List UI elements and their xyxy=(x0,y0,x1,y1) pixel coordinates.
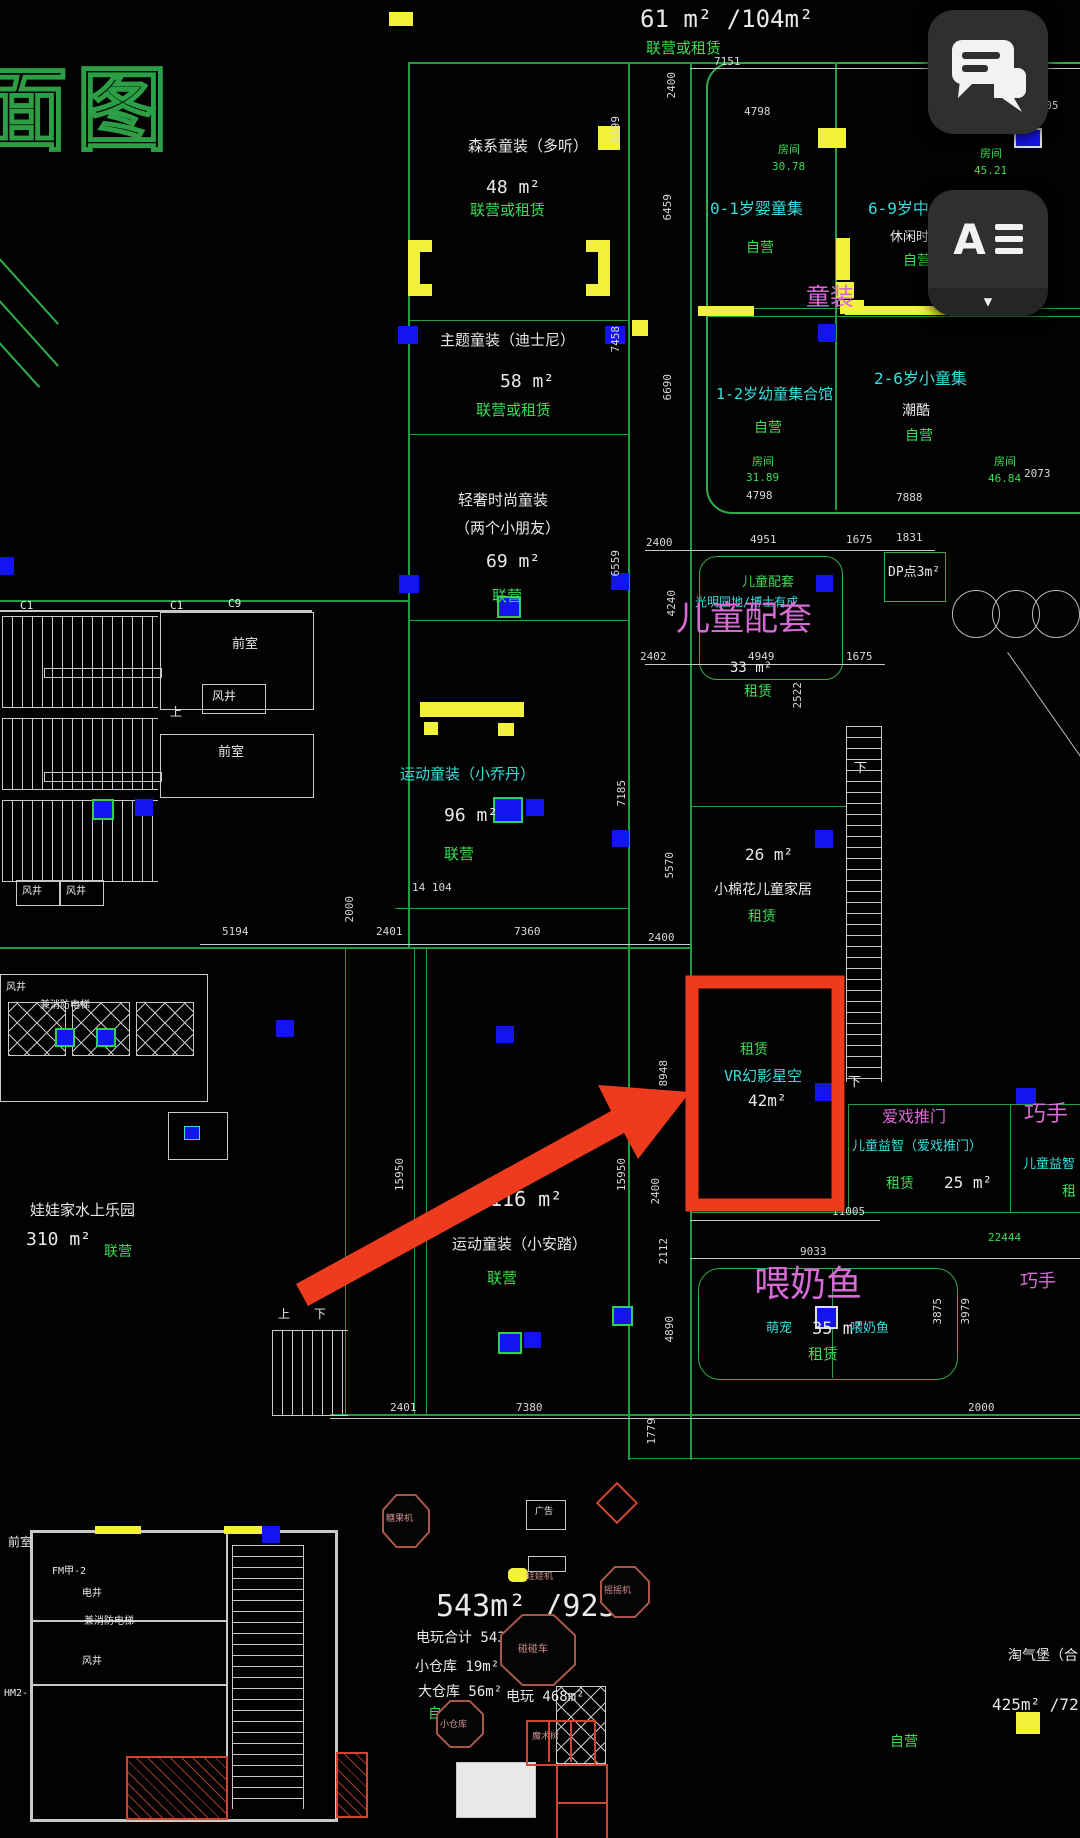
shaft-label: 风井 xyxy=(212,690,236,704)
wall-line xyxy=(706,316,1080,317)
wall-line xyxy=(408,320,628,321)
text-style-icon: A xyxy=(928,202,1048,276)
escalator xyxy=(272,1330,348,1416)
shop-mode: 联营或租赁 xyxy=(470,202,545,219)
shop-area: 26 m² xyxy=(745,846,793,864)
drawing-title-partial: 面图 xyxy=(0,58,176,164)
arcade-line: 小仓库 19m² xyxy=(415,1659,499,1675)
room-tag: 房间 xyxy=(994,456,1016,469)
dim-label: 11005 xyxy=(832,1206,865,1219)
elevator-shaft xyxy=(136,1002,194,1056)
shop-name: 儿童益智（ xyxy=(1023,1158,1080,1173)
dim-label: 2400 xyxy=(666,72,679,99)
chat-bubbles-icon xyxy=(928,10,1048,134)
grid-label: C1 xyxy=(20,600,33,613)
highlight-block xyxy=(698,306,754,316)
dim-label: 3875 xyxy=(932,1298,945,1325)
room-name: 0-1岁婴童集 xyxy=(710,200,803,218)
shop-mode: 自营 xyxy=(890,1734,918,1750)
door-code-label: HM2- xyxy=(4,1688,28,1700)
shop-mode: 联营或租赁 xyxy=(476,402,551,419)
marker-square xyxy=(135,799,153,816)
room-mode: 自营 xyxy=(905,428,933,444)
marker-square xyxy=(262,1526,280,1543)
shop-title: 巧手 xyxy=(1024,1102,1068,1127)
shop-name: 淘气堡（合 xyxy=(1008,1648,1078,1664)
fixture-marker xyxy=(184,1126,200,1140)
highlight-block xyxy=(389,12,413,26)
service-area xyxy=(336,1752,368,1818)
wall-line xyxy=(414,948,415,1415)
vr-area: 42m² xyxy=(748,1092,787,1110)
dim-label: 2000 xyxy=(968,1402,995,1415)
doll-box xyxy=(528,1556,566,1572)
furniture-label: 碰碰车 xyxy=(518,1644,548,1656)
highlight-block xyxy=(1016,1712,1040,1734)
door-code-label: FM甲-2 xyxy=(52,1566,86,1578)
dim-label: 6459 xyxy=(662,194,675,221)
hatch-line xyxy=(0,300,59,367)
shop-title: 爱戏推门 xyxy=(882,1108,946,1126)
furniture-label: 糖果机 xyxy=(386,1514,413,1524)
dim-label: 7360 xyxy=(514,926,541,939)
stair-landing xyxy=(44,772,162,782)
shop-area: 310 m² xyxy=(26,1230,91,1251)
chat-button[interactable] xyxy=(928,10,1048,134)
furniture-label: 娃娃机 xyxy=(526,1572,553,1582)
marker-square xyxy=(818,324,836,342)
shop-name: 儿童益智（爱戏推门） xyxy=(852,1140,982,1155)
marker-square xyxy=(526,799,544,816)
shop-title: 巧手 xyxy=(1020,1272,1056,1293)
highlight-block xyxy=(836,238,850,280)
dim-label: 2401 xyxy=(390,1402,417,1415)
shaft-label: 风井 xyxy=(22,886,42,898)
dim-label: 2400 xyxy=(646,537,673,550)
dim-label: 7888 xyxy=(896,492,923,505)
wall-line xyxy=(426,948,427,1415)
wall-line xyxy=(848,1104,849,1212)
shop-name2: （两个小朋友） xyxy=(455,520,560,537)
wall-line xyxy=(408,434,628,435)
direction-label: 上 xyxy=(170,706,182,720)
room-tag-value: 45.21 xyxy=(974,165,1007,178)
highlight-block xyxy=(586,240,610,252)
highlight-block xyxy=(498,723,514,736)
shaft-label: 风井 xyxy=(82,1656,102,1668)
shop-sublabel: 喂奶鱼 xyxy=(850,1322,889,1337)
wall-line xyxy=(628,1458,1080,1459)
shop-area: 69 m² xyxy=(486,552,540,573)
wall-line xyxy=(408,62,410,948)
shop-mode: 租 xyxy=(1062,1184,1076,1200)
dim-label: 6690 xyxy=(662,374,675,401)
furniture-label: 小仓库 xyxy=(440,1720,467,1730)
marker-square xyxy=(816,575,833,592)
service-box xyxy=(556,1764,608,1804)
service-area xyxy=(126,1756,228,1820)
direction-label: 下 xyxy=(314,1308,326,1322)
support-mode: 租赁 xyxy=(744,684,772,700)
magic-grid xyxy=(526,1720,596,1766)
dropdown-strip[interactable]: ▼ xyxy=(928,288,1048,316)
grid-label: C1 xyxy=(170,600,183,613)
highlight-block xyxy=(586,284,610,296)
room-mode: 自营 xyxy=(903,253,931,269)
flower-marker xyxy=(508,1568,528,1582)
dim-label: 2522 xyxy=(792,682,805,709)
marker-square xyxy=(96,1028,116,1047)
wall-line xyxy=(690,806,846,807)
shop-mode: 租赁 xyxy=(748,909,776,925)
dim-label: 7185 xyxy=(616,780,629,807)
hatch-line xyxy=(0,258,59,325)
marker-square xyxy=(612,830,629,847)
dim-label: 5570 xyxy=(664,852,677,879)
cad-floorplan-view[interactable]: 面图 61 m² /104m² 联营或租赁 森系童装（多听） 48 m² 联营或… xyxy=(0,0,1080,1838)
room-mode: 自营 xyxy=(746,240,774,256)
dim-line xyxy=(690,1258,1080,1259)
mode-label: 联营或租赁 xyxy=(646,40,721,57)
dim-line xyxy=(330,1418,1080,1419)
arcade-line: 大仓库 56m² xyxy=(418,1684,502,1700)
shop-name: 运动童装（小乔丹） xyxy=(400,766,535,783)
dim-label: 2401 xyxy=(376,926,403,939)
room-tag: 房间 xyxy=(752,456,774,469)
marker-square xyxy=(612,1306,633,1326)
shop-name: 小棉花儿童家居 xyxy=(714,882,812,898)
dim-label: 2400 xyxy=(648,932,675,945)
marker-square xyxy=(815,830,833,848)
grid-label: C9 xyxy=(228,598,241,611)
magic-grid-cell xyxy=(570,1720,572,1762)
wall-line xyxy=(408,620,628,621)
fire-diamond xyxy=(596,1482,638,1524)
dim-label: 1675 xyxy=(846,534,873,547)
shop-name: 主题童装（迪士尼） xyxy=(440,332,575,349)
room-name: 2-6岁小童集 xyxy=(874,370,967,388)
shop-mode: 联营 xyxy=(487,1270,517,1287)
room-subname: 潮酷 xyxy=(902,403,930,419)
furniture-label: 魔术树 xyxy=(532,1732,559,1742)
shop-area: 425m² /72 xyxy=(992,1696,1079,1714)
shop-area: 116 m² xyxy=(490,1188,562,1211)
service-box xyxy=(556,1802,608,1838)
dim-line xyxy=(200,944,690,945)
shop-name: 运动童装（小安踏） xyxy=(452,1236,587,1253)
dim-label: 15950 xyxy=(394,1158,407,1191)
shaft-label: 风井 xyxy=(6,982,26,994)
boundary-diagonal xyxy=(1007,652,1080,775)
shop-name: 轻奢时尚童装 xyxy=(458,492,548,509)
highlight-block xyxy=(408,240,432,252)
corridor-wall xyxy=(628,62,630,1460)
marker-square xyxy=(92,799,114,820)
hatch-line xyxy=(0,342,40,388)
shop-area: 48 m² xyxy=(486,178,540,199)
shop-area: 96 m² xyxy=(444,806,498,827)
stair-flight xyxy=(2,616,158,708)
room-tag-value: 31.89 xyxy=(746,472,779,485)
shop-mode: 联营 xyxy=(104,1244,132,1260)
escalator xyxy=(846,726,882,1082)
dim-label: 7151 xyxy=(714,56,741,69)
dim-label: 14 104 xyxy=(412,882,452,895)
highlight-block xyxy=(408,284,432,296)
furniture-label: 摇摇机 xyxy=(604,1586,631,1596)
vr-name: VR幻影星空 xyxy=(724,1068,802,1085)
dim-label: 2073 xyxy=(1024,468,1051,481)
room-tag: 房间 xyxy=(980,148,1002,161)
marker-square xyxy=(498,1332,522,1354)
stair-shaft xyxy=(232,1545,304,1809)
dim-label: 9033 xyxy=(800,1246,827,1259)
marker-square xyxy=(815,1083,833,1101)
room-tag-value: 46.84 xyxy=(988,473,1021,486)
marker-square xyxy=(399,575,419,593)
shop-mode: 联营 xyxy=(492,588,522,605)
dim-label: 1675 xyxy=(846,651,873,664)
elevator-label: 兼消防电梯 xyxy=(40,1000,90,1012)
door-arc xyxy=(1032,590,1080,638)
elevator-label: 兼消防电梯 xyxy=(84,1616,134,1628)
dim-label: 2112 xyxy=(658,1238,671,1265)
dim-label: 4949 xyxy=(748,651,775,664)
dim-label: 1831 xyxy=(896,532,923,545)
wall-line xyxy=(0,600,408,602)
dim-line xyxy=(645,550,935,551)
room-mode: 自营 xyxy=(754,420,782,436)
dim-label: 8948 xyxy=(658,1060,671,1087)
support-label: 儿童配套 xyxy=(742,576,794,591)
shop-area: 58 m² xyxy=(500,372,554,393)
shop-mode: 联营 xyxy=(444,846,474,863)
dim-label: 2400 xyxy=(650,1178,663,1205)
dim-label: 1779 xyxy=(646,1418,659,1445)
shop-area: 25 m² xyxy=(944,1174,992,1192)
marker-square xyxy=(55,1028,75,1047)
marker-square xyxy=(0,557,14,575)
shop-sublabel: 萌宠 xyxy=(766,1322,792,1337)
dim-label: 6199 xyxy=(610,116,623,143)
zone-banner: 童装 xyxy=(806,284,854,312)
marker-square xyxy=(524,1332,541,1348)
wall-line xyxy=(1010,1104,1011,1212)
shop-title: 喂奶鱼 xyxy=(754,1264,862,1305)
dim-label: 2000 xyxy=(344,896,357,923)
wall-line-white xyxy=(32,1684,226,1686)
direction-label: 下 xyxy=(854,762,867,777)
dim-label: 4798 xyxy=(746,490,773,503)
marker-square xyxy=(496,1026,514,1043)
dim-label: 3979 xyxy=(960,1298,973,1325)
letter-a-glyph: A xyxy=(953,215,986,264)
dim-label: 7380 xyxy=(516,1402,543,1415)
stair-landing xyxy=(44,668,162,678)
dim-label: 15950 xyxy=(616,1158,629,1191)
shop-name: 森系童装（多听） xyxy=(468,138,588,155)
marker-square xyxy=(398,326,418,344)
wall-line xyxy=(690,1212,1080,1213)
lines-glyph xyxy=(995,224,1023,254)
corridor-wall xyxy=(690,62,692,1460)
direction-label: 上 xyxy=(278,1308,290,1322)
dim-label: 5194 xyxy=(222,926,249,939)
room-name: 6-9岁中 xyxy=(868,200,929,218)
room-label: 前室 xyxy=(232,638,258,653)
highlight-block xyxy=(632,320,648,336)
room-name: 1-2岁幼童集合馆 xyxy=(716,386,833,403)
shaft-label: 风井 xyxy=(66,886,86,898)
room-tag-value: 30.78 xyxy=(772,161,805,174)
dp-point-label: DP点3m² xyxy=(888,566,940,581)
dim-label: 4890 xyxy=(664,1316,677,1343)
chevron-down-icon: ▼ xyxy=(984,295,992,309)
marker-square xyxy=(276,1020,294,1037)
room-label: 前室 xyxy=(8,1536,32,1550)
room-tag: 房间 xyxy=(778,144,800,157)
dim-label: 22444 xyxy=(988,1232,1021,1245)
stage-box xyxy=(456,1762,536,1818)
dim-label: 6559 xyxy=(610,550,623,577)
highlight-block xyxy=(424,722,438,735)
dim-label: 4951 xyxy=(750,534,777,547)
anteroom-outline xyxy=(160,734,314,798)
support-banner: 儿童配套 xyxy=(676,600,812,639)
dim-label: 7458 xyxy=(610,326,623,353)
shop-name: 娃娃家水上乐园 xyxy=(30,1202,135,1219)
direction-label: 下 xyxy=(848,1076,861,1091)
vr-mode: 租赁 xyxy=(740,1042,768,1058)
shaft-label: 电井 xyxy=(82,1588,102,1600)
text-style-button[interactable]: A ▼ xyxy=(928,190,1048,316)
ad-label: 广告 xyxy=(535,1507,553,1517)
highlight-block xyxy=(95,1526,141,1534)
dim-label: 2402 xyxy=(640,651,667,664)
area-label: 61 m² /104m² xyxy=(640,6,813,34)
wall-line xyxy=(395,908,628,909)
dim-label: 4240 xyxy=(666,590,679,617)
dim-line xyxy=(690,1220,880,1221)
highlight-block xyxy=(818,128,846,148)
highlight-block xyxy=(420,702,524,717)
shop-mode: 租赁 xyxy=(808,1346,838,1363)
room-label: 前室 xyxy=(218,746,244,761)
shop-mode: 租赁 xyxy=(886,1176,914,1192)
dim-label: 4798 xyxy=(744,106,771,119)
arcade-line: 电玩 468m² xyxy=(506,1689,585,1705)
